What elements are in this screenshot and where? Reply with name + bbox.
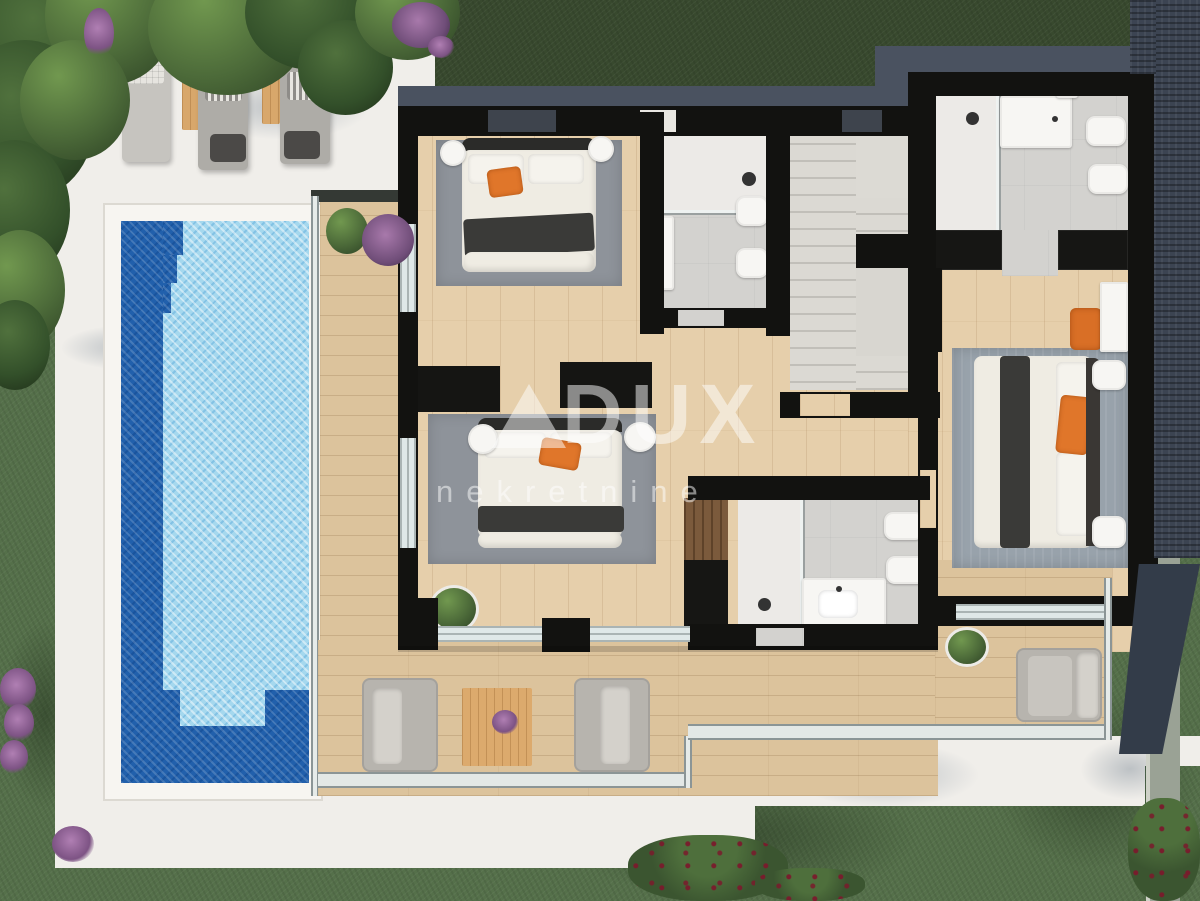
flowering-shrub	[1128, 798, 1200, 901]
shower-head	[966, 112, 979, 125]
armchair-seat	[1028, 656, 1072, 716]
wall	[918, 268, 938, 628]
toilet	[736, 196, 768, 226]
potted-plant	[432, 588, 476, 630]
armchair-cushion	[600, 686, 630, 764]
bed-throw	[1000, 356, 1030, 548]
bed-foot	[464, 252, 594, 272]
lounger-cushion	[210, 134, 246, 162]
sink	[818, 590, 858, 618]
orange-accent-pillow	[486, 166, 524, 198]
shower-head	[742, 172, 756, 186]
vanity	[1000, 96, 1072, 148]
slider-shadow	[398, 646, 938, 652]
flat-roof	[1130, 0, 1156, 74]
balcony-plant	[326, 208, 368, 254]
wall	[688, 476, 930, 500]
table-flowers	[492, 710, 518, 734]
roof-parapet	[875, 46, 908, 108]
orange-ottoman	[1070, 308, 1102, 350]
wall-west	[398, 106, 418, 650]
wood-wardrobe	[684, 498, 728, 560]
faucet	[1052, 116, 1058, 122]
wall-north-east	[908, 72, 1158, 96]
wardrobe	[560, 362, 652, 408]
bidet	[1088, 164, 1128, 194]
shower	[738, 500, 800, 630]
wardrobe	[684, 560, 728, 628]
bidet	[736, 248, 768, 278]
bedside-table	[624, 422, 656, 452]
doorway	[756, 628, 804, 646]
hedge-bush	[20, 40, 130, 160]
pool-shallow-notch	[180, 690, 265, 726]
bed-throw	[478, 506, 624, 532]
bed-pillow	[1056, 452, 1090, 536]
bathroom2-doorway	[1002, 230, 1058, 276]
pool-step	[163, 283, 171, 313]
doorway	[800, 394, 850, 416]
glass-railing	[1104, 578, 1112, 740]
flowering-shrub	[755, 868, 865, 901]
nightstand	[1092, 360, 1126, 390]
bedside-table	[468, 424, 498, 454]
window	[488, 110, 556, 132]
faucet	[836, 586, 842, 592]
wall-corner	[398, 598, 438, 650]
shower-head	[758, 598, 771, 611]
wardrobe	[930, 230, 1002, 270]
shower-glass	[996, 96, 999, 232]
wardrobe	[418, 366, 500, 412]
window	[842, 110, 882, 132]
toilet	[1086, 116, 1126, 146]
balcony-flower-plant	[362, 214, 414, 266]
glass-railing	[684, 736, 692, 788]
floorplan-render: DUX nekretnine	[0, 0, 1200, 901]
pool-step	[163, 255, 177, 283]
flower-bush	[428, 36, 454, 58]
flower-patch	[4, 704, 34, 742]
bedside-table	[588, 136, 614, 162]
potted-plant	[948, 630, 986, 664]
armchair-cushion	[1076, 652, 1098, 718]
stair-flight	[790, 128, 856, 390]
desk	[1100, 282, 1128, 352]
shower	[932, 96, 998, 232]
glass-railing	[318, 772, 688, 788]
bed-pillow	[528, 154, 584, 184]
glass-slider	[956, 604, 1106, 620]
glass-slider	[590, 626, 690, 642]
flat-roof	[1154, 0, 1200, 558]
wall	[640, 112, 664, 334]
lounger-cushion	[284, 131, 320, 159]
bed-throw	[463, 213, 595, 258]
wall	[766, 106, 790, 336]
doorway	[678, 310, 724, 326]
glass-slider	[438, 626, 542, 642]
glass-railing	[688, 724, 1112, 740]
hedge-flowers	[84, 8, 114, 58]
roof-parapet	[398, 86, 908, 108]
glass-door	[400, 438, 416, 548]
bed-foot	[478, 532, 622, 548]
bedside-table	[440, 140, 466, 166]
roof-parapet	[875, 46, 1158, 74]
flower-patch	[0, 740, 28, 774]
wardrobe	[1058, 230, 1128, 270]
pool-step	[163, 221, 183, 255]
nightstand	[1092, 516, 1126, 548]
armchair-cushion	[372, 688, 402, 764]
flower-patch	[52, 826, 94, 862]
